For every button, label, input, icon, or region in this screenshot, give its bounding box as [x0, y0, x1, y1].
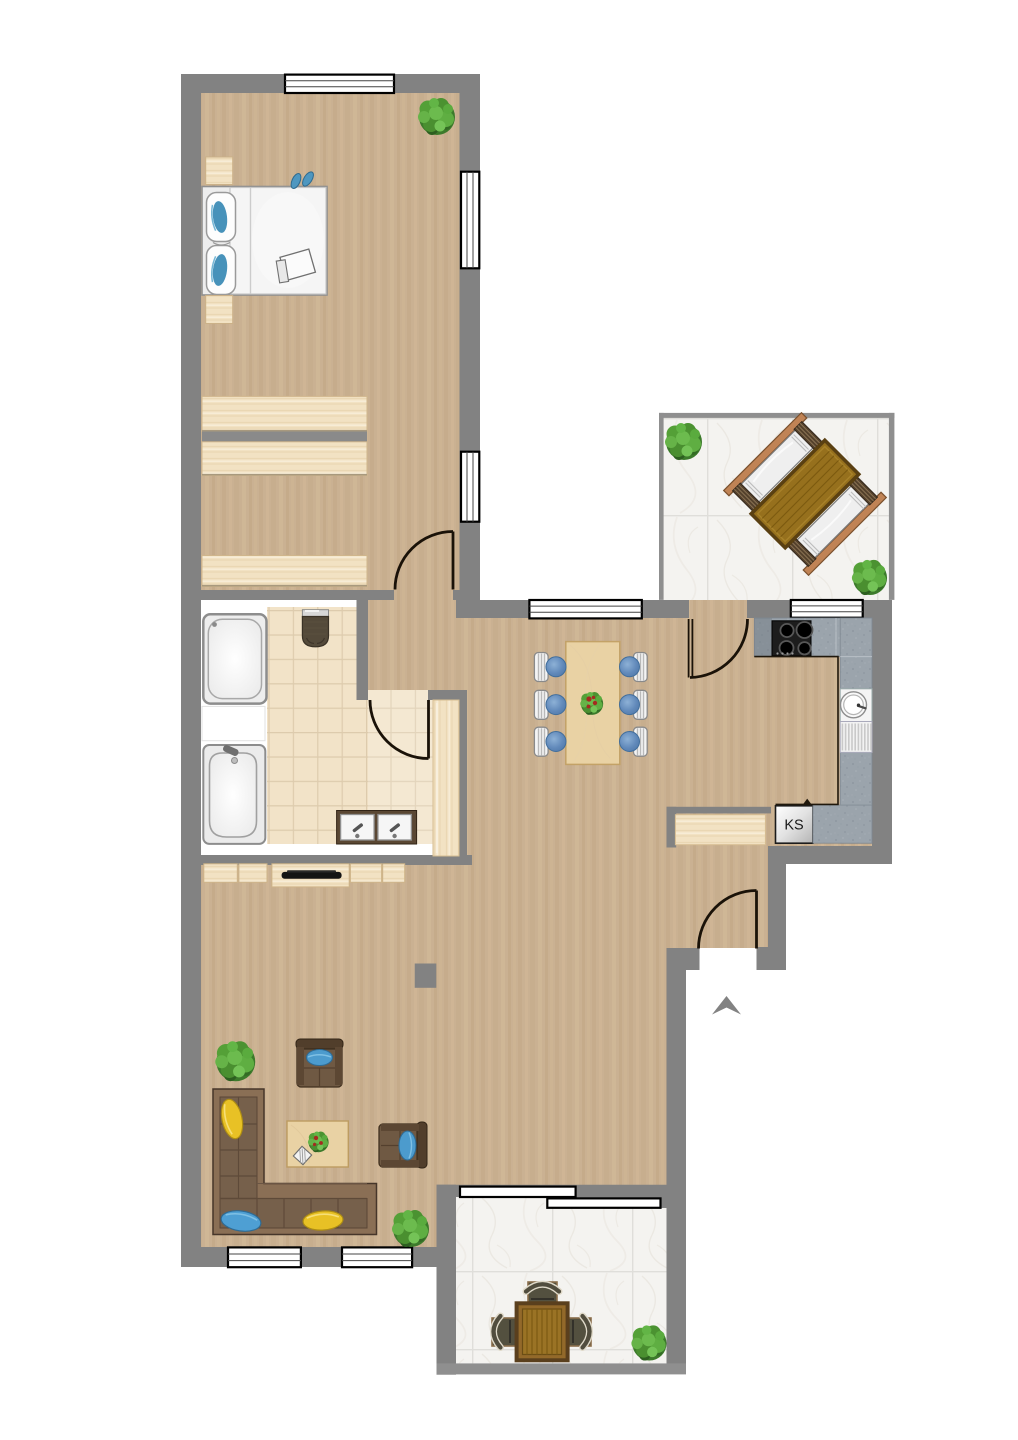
svg-text:KS: KS [784, 818, 803, 834]
